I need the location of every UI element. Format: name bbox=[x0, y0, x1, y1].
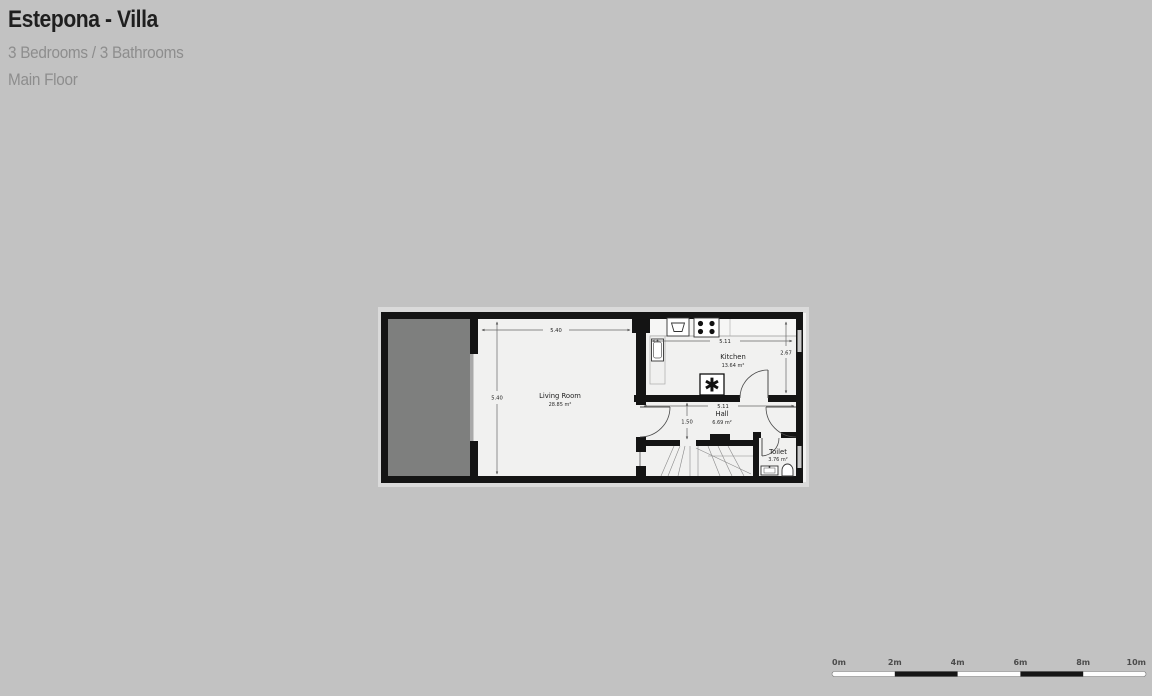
kitchen-width-dim: 5.11 bbox=[719, 339, 731, 345]
hall-area: 6.69 m² bbox=[712, 420, 732, 426]
scale-bar-track bbox=[832, 672, 1146, 677]
scale-label-2m: 2m bbox=[888, 658, 902, 667]
scale-label-8m: 8m bbox=[1076, 658, 1090, 667]
livingroom-height-dim: 5.40 bbox=[491, 396, 503, 402]
scale-bar: 0m 2m 4m 6m 8m 10m bbox=[828, 656, 1150, 684]
page-title: Estepona - Villa bbox=[8, 6, 180, 34]
kitchen-window bbox=[798, 330, 802, 352]
appliance-glyph: ✱ bbox=[704, 375, 720, 397]
kitchen-sink-icon bbox=[667, 318, 689, 336]
scale-label-4m: 4m bbox=[951, 658, 965, 667]
toilet-label: Toilet bbox=[768, 448, 787, 456]
screen: Estepona - Villa 3 Bedrooms / 3 Bathroom… bbox=[0, 0, 1152, 696]
floor-plan: ✱ bbox=[378, 306, 810, 488]
stove-icon bbox=[694, 318, 719, 337]
floor-plan-svg: ✱ bbox=[378, 306, 810, 488]
washbasin-icon bbox=[761, 466, 778, 475]
scale-label-10m: 10m bbox=[1127, 658, 1146, 667]
utility-sink-icon bbox=[652, 339, 664, 361]
floor-label: Main Floor bbox=[8, 70, 184, 90]
scale-bar-segment-dark-2 bbox=[1020, 672, 1083, 677]
appliance-icon: ✱ bbox=[700, 374, 724, 397]
livingroom-label: Living Room bbox=[539, 392, 581, 400]
kitchen-height-dim: 2.67 bbox=[780, 351, 792, 357]
hall-label: Hall bbox=[715, 410, 728, 418]
kitchen-area: 13.64 m² bbox=[722, 363, 745, 369]
terrace-sliding-window bbox=[470, 354, 474, 441]
livingroom-width-dim: 5.40 bbox=[550, 328, 562, 334]
scale-bar-svg: 0m 2m 4m 6m 8m 10m bbox=[828, 656, 1150, 684]
scale-bar-segment-dark-1 bbox=[895, 672, 958, 677]
hall-height-dim: 1.50 bbox=[681, 420, 693, 426]
toilet-window bbox=[798, 446, 802, 468]
kitchen-label: Kitchen bbox=[720, 353, 746, 361]
scale-label-6m: 6m bbox=[1013, 658, 1027, 667]
scale-label-0m: 0m bbox=[832, 658, 846, 667]
livingroom-area: 28.85 m² bbox=[549, 402, 572, 408]
toilet-area: 3.76 m² bbox=[768, 457, 788, 463]
bedrooms-bathrooms-label: 3 Bedrooms / 3 Bathrooms bbox=[8, 43, 184, 63]
plan-header: Estepona - Villa 3 Bedrooms / 3 Bathroom… bbox=[8, 6, 203, 90]
toilet-icon bbox=[782, 464, 793, 476]
terrace bbox=[386, 318, 470, 477]
